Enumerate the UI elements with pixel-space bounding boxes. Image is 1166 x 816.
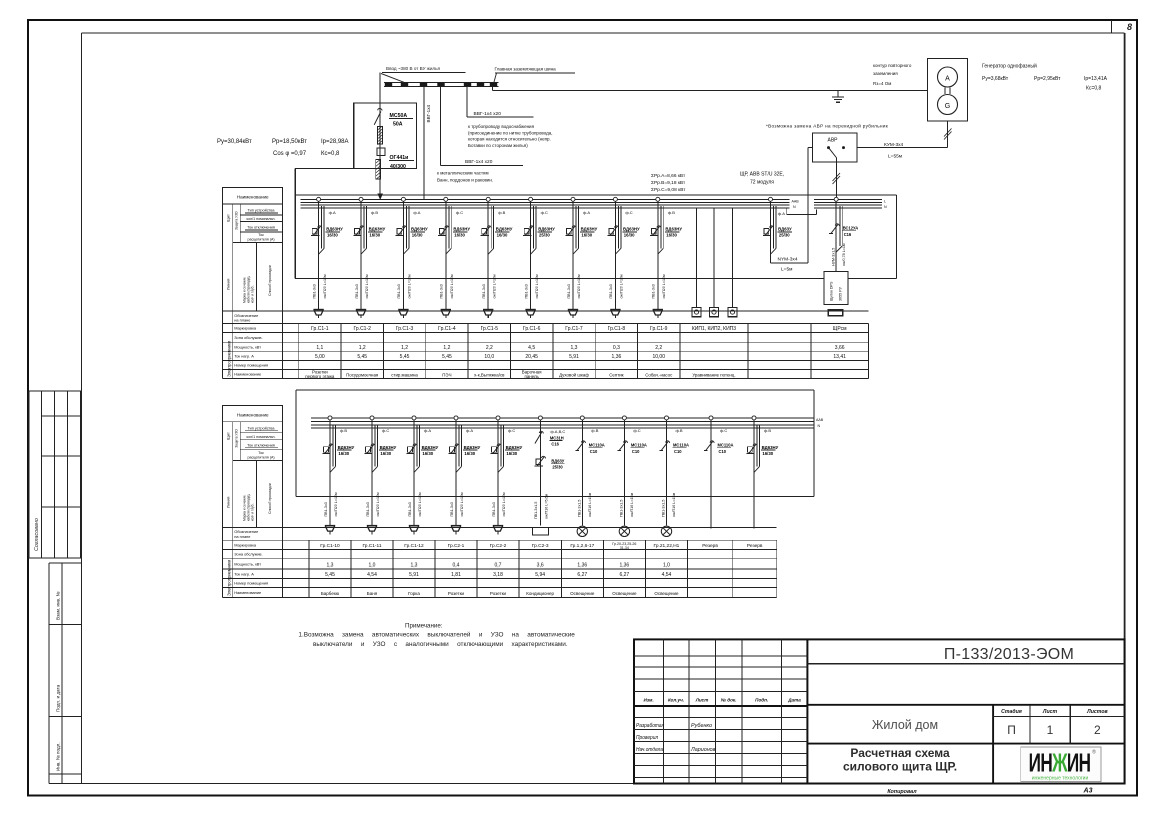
svg-text:3,66: 3,66 (835, 345, 845, 351)
svg-text:Ру=30,84кВт: Ру=30,84кВт (217, 139, 252, 145)
svg-text:5,45: 5,45 (400, 354, 410, 360)
svg-text:ΣРр.А=8,66 кВт: ΣРр.А=8,66 кВт (651, 173, 686, 179)
svg-text:Главная заземляющая шина: Главная заземляющая шина (495, 67, 557, 72)
svg-text:ААВ: ААВ (792, 200, 800, 204)
svg-text:Номер помещения: Номер помещения (234, 363, 268, 368)
svg-text:1,3: 1,3 (411, 563, 418, 569)
svg-text:ф.А: ф.А (583, 210, 590, 215)
svg-text:10,0: 10,0 (484, 354, 494, 360)
svg-text:8: 8 (1127, 22, 1132, 32)
svg-text:4,54: 4,54 (662, 572, 672, 578)
svg-text:МС110А: МС110А (673, 443, 689, 448)
svg-text:Линия: Линия (226, 497, 231, 508)
svg-text:НУМ-3х1,5: НУМ-3х1,5 (831, 248, 835, 266)
svg-text:Гр.С1-7: Гр.С1-7 (565, 326, 583, 332)
svg-text:Инв. № подл.: Инв. № подл. (56, 742, 61, 771)
svg-text:Маркировка: Маркировка (234, 542, 257, 547)
svg-text:на плане: на плане (234, 534, 250, 539)
svg-text:ВД63НУ: ВД63НУ (762, 445, 779, 450)
svg-text:Кондиционер: Кондиционер (526, 591, 554, 596)
svg-text:0,3: 0,3 (613, 345, 620, 351)
svg-text:Взам. инв. №: Взам. инв. № (56, 591, 61, 620)
svg-text:20,45: 20,45 (525, 354, 538, 360)
svg-text:Ток отключения: Ток отключения (247, 226, 275, 230)
svg-text:ож/П20 L=10м: ож/П20 L=10м (418, 492, 422, 517)
svg-text:ПВ1-3х3: ПВ1-3х3 (450, 502, 454, 516)
svg-text:Нач.отдела: Нач.отдела (636, 747, 663, 753)
svg-text:5,45: 5,45 (442, 354, 452, 360)
svg-text:L: L (884, 200, 886, 204)
svg-text:ΣРр.В=9,18 кВт: ΣРр.В=9,18 кВт (651, 180, 686, 186)
svg-text:Щиток DPS: Щиток DPS (830, 281, 834, 301)
svg-text:ВД63НУ: ВД63НУ (538, 227, 555, 232)
svg-text:0,4: 0,4 (453, 563, 460, 569)
svg-text:Рр=18,50кВт: Рр=18,50кВт (272, 139, 307, 145)
svg-text:Освещение: Освещение (570, 591, 595, 596)
svg-text:П: П (1007, 723, 1016, 737)
svg-text:Маркировка: Маркировка (234, 326, 257, 331)
svg-text:2,2: 2,2 (655, 345, 662, 351)
svg-text:Гр.С2-1: Гр.С2-1 (448, 543, 465, 549)
svg-text:Гр.С1-12: Гр.С1-12 (404, 543, 424, 549)
svg-text:6,27: 6,27 (577, 572, 587, 578)
svg-text:5,91: 5,91 (569, 354, 579, 360)
svg-text:МС31Н: МС31Н (550, 435, 564, 440)
svg-text:ВВГ-1х4: ВВГ-1х4 (426, 105, 431, 123)
svg-text:Освещение: Освещение (654, 591, 679, 596)
svg-text:ПВ1-3х1,5: ПВ1-3х1,5 (578, 500, 582, 517)
svg-text:кол² и глуб.: кол² и глуб. (251, 503, 255, 521)
svg-text:16/30: 16/30 (506, 451, 517, 456)
svg-text:16/30: 16/30 (497, 233, 508, 238)
svg-text:кол/1 номинальн.: кол/1 номинальн. (246, 435, 275, 439)
svg-text:ВД63НУ: ВД63НУ (338, 445, 355, 450)
svg-text:Освещение: Освещение (612, 591, 637, 596)
svg-text:ВД63НУ: ВД63НУ (411, 227, 428, 232)
svg-text:МС110А: МС110А (631, 443, 647, 448)
svg-text:кол² и глуб.: кол² и глуб. (251, 285, 255, 303)
svg-text:Розетки: Розетки (490, 591, 507, 596)
svg-text:Защита УЗО: Защита УЗО (235, 429, 239, 448)
svg-text:ВВГ-1х4 х20: ВВГ-1х4 х20 (465, 159, 493, 165)
svg-text:Ток: Ток (258, 451, 264, 455)
svg-text:ПЭЧ: ПЭЧ (442, 372, 451, 377)
svg-text:Гр.С2-3: Гр.С2-3 (532, 543, 549, 549)
svg-text:ВД63У: ВД63У (778, 227, 792, 232)
svg-text:ф.В: ф.В (340, 428, 347, 433)
svg-text:1.Возможна замена автоматическ: 1.Возможна замена автоматических выключа… (298, 630, 575, 638)
svg-text:5,00: 5,00 (315, 354, 325, 360)
svg-text:ф.С: ф.С (382, 428, 389, 433)
svg-text:Гр.С1-4: Гр.С1-4 (438, 326, 456, 332)
svg-text:Ру=3,68кВт: Ру=3,68кВт (982, 76, 1009, 82)
svg-text:Ботавки по сторонам жилья): Ботавки по сторонам жилья) (468, 143, 528, 148)
svg-text:первого этажа: первого этажа (305, 374, 335, 379)
svg-text:ож/П20 L=10м: ож/П20 L=10м (577, 274, 581, 299)
svg-text:Мощность, кВт: Мощность, кВт (234, 344, 261, 349)
svg-text:ПВ1-3х3: ПВ1-3х3 (440, 284, 444, 298)
svg-text:кол/1 номинальн.: кол/1 номинальн. (246, 217, 275, 221)
svg-text:ВД63НУ: ВД63НУ (581, 227, 598, 232)
svg-text:5,94: 5,94 (535, 572, 545, 578)
svg-text:ВД63НУ: ВД63НУ (326, 227, 343, 232)
svg-text:40/300: 40/300 (390, 164, 406, 170)
svg-text:ЩР, АВВ ST/U 32Е,: ЩР, АВВ ST/U 32Е, (740, 172, 784, 178)
svg-text:ф.А: ф.А (424, 428, 431, 433)
svg-text:1,2: 1,2 (359, 345, 366, 351)
svg-text:ф.А: ф.А (329, 210, 336, 215)
svg-text:6,27: 6,27 (619, 572, 629, 578)
svg-text:ф.В: ф.В (764, 428, 771, 433)
svg-text:Способ прокладки: Способ прокладки (268, 483, 272, 514)
svg-text:16/30: 16/30 (581, 233, 592, 238)
svg-text:Линия: Линия (226, 279, 231, 290)
svg-text:ф.А,В,С: ф.А,В,С (550, 429, 565, 434)
svg-text:ф.А: ф.А (778, 211, 785, 216)
svg-text:ΣРр.С=9,08 кВт: ΣРр.С=9,08 кВт (651, 187, 686, 193)
svg-text:расцепителя (А): расцепителя (А) (247, 455, 274, 459)
svg-text:Резерв: Резерв (702, 543, 718, 549)
svg-text:ОГ441и: ОГ441и (390, 155, 409, 161)
svg-text:ож/П20 L=10м: ож/П20 L=10м (334, 492, 338, 517)
svg-text:АВР: АВР (827, 138, 838, 144)
svg-text:Дата: Дата (787, 698, 801, 703)
svg-text:Наименование: Наименование (234, 590, 261, 595)
svg-text:1: 1 (1047, 723, 1054, 737)
svg-text:ф.В: ф.В (676, 428, 683, 433)
svg-text:Ток нагр. А: Ток нагр. А (234, 571, 254, 576)
svg-text:Рубенко: Рубенко (691, 723, 712, 729)
svg-text:Ток нагр. А: Ток нагр. А (234, 353, 254, 358)
svg-text:Ванн, поддонов и раковин.: Ванн, поддонов и раковин. (437, 178, 493, 183)
svg-text:0,7: 0,7 (495, 563, 502, 569)
svg-text:А: А (945, 76, 950, 83)
svg-text:КИП1, КИП2, КИП3: КИП1, КИП2, КИП3 (692, 326, 736, 332)
svg-text:ф.С: ф.С (456, 210, 463, 215)
svg-text:Примечание:: Примечание: (405, 623, 443, 630)
svg-text:16/30: 16/30 (327, 233, 338, 238)
svg-text:1,0: 1,0 (663, 563, 670, 569)
svg-text:Собач.-насос: Собач.-насос (645, 372, 673, 377)
svg-text:С10: С10 (719, 449, 727, 454)
svg-text:Электроприемники: Электроприемники (227, 341, 232, 377)
svg-text:3,6: 3,6 (537, 563, 544, 569)
svg-text:ПВ1-3х3: ПВ1-3х3 (408, 502, 412, 516)
svg-text:стир.машина: стир.машина (391, 372, 418, 377)
svg-text:ф.С: ф.С (720, 428, 727, 433)
svg-text:ААВ: ААВ (816, 418, 824, 422)
svg-text:заземления: заземления (873, 71, 898, 76)
svg-text:ВД63НУ: ВД63НУ (623, 227, 640, 232)
svg-text:ПВ1-3х3: ПВ1-3х3 (397, 284, 401, 298)
svg-text:Жилой дом: Жилой дом (872, 718, 938, 732)
svg-text:А3: А3 (1083, 788, 1093, 795)
svg-text:ф.С: ф.С (508, 428, 515, 433)
svg-text:ож/П20 L=10м: ож/П20 L=10м (620, 274, 624, 299)
svg-text:ож/П16 L=5,6м: ож/П16 L=5,6м (545, 493, 549, 519)
svg-text:Уравнивание потенц.: Уравнивание потенц. (692, 372, 735, 377)
svg-text:ож/П16 L=15м: ож/П16 L=15м (588, 492, 592, 517)
svg-text:КУМ-3х4: КУМ-3х4 (884, 142, 904, 148)
svg-text:16/30: 16/30 (412, 233, 423, 238)
svg-text:ПВ1-3х3: ПВ1-3х3 (567, 284, 571, 298)
svg-text:к трубопроводу водоснабжения: к трубопроводу водоснабжения (468, 124, 535, 129)
svg-text:ож/П20 L=10м: ож/П20 L=10м (376, 492, 380, 517)
svg-text:1,0: 1,0 (369, 563, 376, 569)
svg-text:которая находится относительно: которая находится относительно (непр. (468, 137, 551, 142)
svg-text:1,2: 1,2 (401, 345, 408, 351)
svg-text:ПВ1-3х3: ПВ1-3х3 (312, 284, 316, 298)
svg-text:ВД63НУ: ВД63НУ (665, 227, 682, 232)
svg-text:Зона обслужив.: Зона обслужив. (234, 552, 262, 557)
svg-text:3,18: 3,18 (493, 572, 503, 578)
svg-text:N: N (818, 424, 821, 428)
svg-text:выключатели и УЗО с аналогичны: выключатели и УЗО с аналогичными отключа… (313, 641, 568, 648)
svg-text:Генератор однофазный: Генератор однофазный (982, 63, 1037, 70)
svg-text:16/30: 16/30 (666, 233, 677, 238)
svg-text:Ток: Ток (258, 233, 264, 237)
svg-text:Наименование: Наименование (237, 412, 269, 417)
svg-text:Тип устройства: Тип устройства (248, 426, 276, 430)
svg-text:1,3: 1,3 (327, 563, 334, 569)
svg-text:ф.С: ф.С (625, 210, 632, 215)
svg-text:4,54: 4,54 (367, 572, 377, 578)
svg-text:16/30: 16/30 (464, 451, 475, 456)
svg-text:1,36: 1,36 (577, 563, 587, 569)
svg-text:ПВ1-3х3: ПВ1-3х3 (609, 284, 613, 298)
svg-text:16/30: 16/30 (454, 233, 465, 238)
svg-text:Проверил: Проверил (636, 735, 658, 741)
svg-text:Щит: Щит (226, 432, 231, 440)
svg-text:ВД63НУ: ВД63НУ (496, 227, 513, 232)
svg-text:Способ прокладки: Способ прокладки (268, 265, 272, 296)
svg-text:72 модуля: 72 модуля (750, 180, 774, 186)
svg-text:С16: С16 (551, 442, 559, 447)
svg-text:П-133/2013-ЭОМ: П-133/2013-ЭОМ (944, 646, 1074, 663)
svg-text:Резерв: Резерв (747, 543, 763, 549)
svg-text:ож/П20 L=10м: ож/П20 L=10м (450, 274, 454, 299)
svg-text:Подп. и дата: Подп. и дата (56, 684, 61, 712)
svg-text:ож/П20 L=10м: ож/П20 L=10м (408, 274, 412, 299)
svg-text:Кол.уч.: Кол.уч. (668, 698, 684, 703)
svg-text:10,00: 10,00 (652, 354, 665, 360)
svg-text:ф.С: ф.С (633, 428, 640, 433)
svg-text:ф.В: ф.В (591, 428, 598, 433)
svg-text:25/30: 25/30 (539, 233, 550, 238)
svg-text:Расчетная схема: Расчетная схема (850, 746, 950, 760)
svg-text:ПВ1-3х3: ПВ1-3х3 (324, 502, 328, 516)
svg-text:Духовой шкаф: Духовой шкаф (559, 372, 589, 377)
svg-text:13,41: 13,41 (833, 354, 846, 360)
svg-text:ПВ1-3х3: ПВ1-3х3 (652, 284, 656, 298)
svg-text:1,36: 1,36 (612, 354, 622, 360)
svg-text:1,2: 1,2 (443, 345, 450, 351)
svg-text:5,91: 5,91 (409, 572, 419, 578)
svg-text:на плане: на плане (234, 317, 250, 322)
svg-text:L=5м: L=5м (781, 266, 792, 272)
svg-text:МС110А: МС110А (589, 443, 605, 448)
svg-text:Гр.С2-2: Гр.С2-2 (490, 543, 507, 549)
svg-text:Электроприемники: Электроприемники (227, 560, 232, 596)
svg-text:Рр=2,95кВт: Рр=2,95кВт (1034, 76, 1061, 82)
svg-text:*Возможна замена АВР на переки: *Возможна замена АВР на перекидной рубил… (766, 123, 889, 129)
svg-text:Септик: Септик (609, 372, 623, 377)
svg-text:1,36: 1,36 (619, 563, 629, 569)
svg-text:МС110А: МС110А (718, 443, 734, 448)
svg-text:расцепителя (А): расцепителя (А) (247, 238, 274, 242)
svg-text:Ток отключения: Ток отключения (247, 443, 275, 447)
svg-text:Наименование: Наименование (237, 195, 269, 200)
svg-text:Лист: Лист (1042, 709, 1058, 715)
svg-text:Гр.С1-10: Гр.С1-10 (320, 543, 340, 549)
svg-text:Ларионов: Ларионов (690, 747, 716, 753)
svg-text:ВД63НУ: ВД63НУ (464, 445, 481, 450)
svg-text:С10: С10 (674, 449, 682, 454)
svg-text:Горка: Горка (408, 591, 420, 596)
svg-text:С16: С16 (844, 232, 852, 237)
svg-text:Номер помещения: Номер помещения (234, 581, 268, 586)
svg-text:Гр.1,2,6-17: Гр.1,2,6-17 (570, 543, 594, 549)
svg-text:ЩРсм: ЩРсм (833, 326, 848, 332)
svg-text:1,81: 1,81 (451, 572, 461, 578)
svg-text:25/30: 25/30 (552, 465, 563, 470)
svg-text:ИНЖИН: ИНЖИН (1029, 748, 1091, 778)
svg-text:2,2: 2,2 (486, 345, 493, 351)
svg-text:МС50А: МС50А (390, 113, 408, 119)
svg-text:(присоединение по нитке трубоп: (присоединение по нитке трубопровода, (468, 130, 553, 135)
svg-text:Гр.С1-2: Гр.С1-2 (353, 326, 371, 332)
svg-text:Iр=13,41А: Iр=13,41А (1084, 76, 1108, 82)
svg-text:ПВ1-3х1,5: ПВ1-3х1,5 (662, 500, 666, 517)
svg-text:контур повторного: контур повторного (873, 63, 912, 68)
svg-text:ф.С: ф.С (541, 210, 548, 215)
svg-text:Посудомоечная: Посудомоечная (346, 372, 379, 377)
svg-text:25/30: 25/30 (779, 233, 790, 238)
svg-text:инженерные технологии: инженерные технологии (1032, 776, 1089, 782)
svg-text:Копировал: Копировал (887, 789, 917, 795)
svg-text:ож/П20 L=10м: ож/П20 L=10м (365, 274, 369, 299)
svg-text:Стадия: Стадия (1001, 709, 1022, 715)
svg-text:С10: С10 (632, 449, 640, 454)
svg-text:ВД63НУ: ВД63НУ (380, 445, 397, 450)
svg-text:ВД63НУ: ВД63НУ (506, 445, 523, 450)
svg-text:ф.А: ф.А (413, 210, 420, 215)
svg-text:ож/П20 L=10м: ож/П20 L=10м (460, 492, 464, 517)
svg-text:Iр=28,98А: Iр=28,98А (321, 139, 349, 145)
svg-text:2: 2 (1094, 723, 1101, 737)
svg-text:ПВ1-3х3: ПВ1-3х3 (492, 502, 496, 516)
svg-text:ПВ1-3х1,5: ПВ1-3х1,5 (620, 500, 624, 517)
svg-text:ож/П20 L=10м: ож/П20 L=10м (323, 274, 327, 299)
svg-text:Гр.21,22,Н1: Гр.21,22,Н1 (654, 543, 680, 549)
svg-text:1,3: 1,3 (571, 345, 578, 351)
svg-text:Тип устройства: Тип устройства (248, 209, 276, 213)
svg-text:Мощность, кВт: Мощность, кВт (234, 561, 261, 566)
svg-text:ф.В: ф.В (498, 210, 505, 215)
svg-text:Защита УЗО: Защита УЗО (235, 211, 239, 230)
svg-text:Cos φ =0,97: Cos φ =0,97 (273, 151, 307, 157)
svg-text:Лист: Лист (695, 698, 709, 703)
svg-text:®: ® (1092, 749, 1096, 756)
svg-text:ПВ1-3х3: ПВ1-3х3 (355, 284, 359, 298)
svg-text:ПВ1-3х3: ПВ1-3х3 (524, 284, 528, 298)
svg-text:N: N (793, 205, 796, 209)
svg-text:Баня: Баня (367, 591, 378, 596)
svg-text:NYM-3х4: NYM-3х4 (778, 257, 798, 263)
svg-text:3655 РУ: 3655 РУ (839, 286, 843, 301)
svg-text:ф.В: ф.В (371, 210, 378, 215)
svg-text:ож/П20 L=10м: ож/П20 L=10м (535, 274, 539, 299)
svg-text:Изм.: Изм. (643, 698, 653, 703)
svg-text:С10: С10 (590, 449, 598, 454)
svg-text:к металлическим частям: к металлическим частям (437, 171, 489, 176)
svg-text:ож/П20 L=10м: ож/П20 L=10м (492, 274, 496, 299)
svg-text:панель: панель (524, 374, 539, 379)
svg-text:Подп.: Подп. (755, 698, 768, 703)
svg-text:16/30: 16/30 (380, 451, 391, 456)
svg-text:50А: 50А (393, 122, 403, 128)
svg-text:1,1: 1,1 (316, 345, 323, 351)
svg-text:Ввод ~380 В от ВУ жилья: Ввод ~380 В от ВУ жилья (386, 66, 440, 71)
svg-text:ПВ1-3х3: ПВ1-3х3 (366, 502, 370, 516)
svg-text:ВД63У: ВД63У (551, 459, 564, 464)
svg-text:4,5: 4,5 (528, 345, 535, 351)
svg-text:ВВГ-1х4 х20: ВВГ-1х4 х20 (474, 111, 502, 117)
svg-text:G: G (945, 103, 950, 110)
svg-text:L=55м: L=55м (888, 154, 902, 160)
svg-text:х-к,Вытяжка/св: х-к,Вытяжка/св (474, 372, 505, 377)
svg-text:ож/П20 L=10м: ож/П20 L=10м (502, 492, 506, 517)
svg-text:Гр.С1-8: Гр.С1-8 (608, 326, 626, 332)
svg-text:31-34: 31-34 (620, 546, 629, 550)
svg-text:ПВ1-3х1,5: ПВ1-3х1,5 (534, 502, 538, 519)
svg-text:силового щита ЩР.: силового щита ЩР. (843, 760, 957, 774)
svg-text:16/30: 16/30 (422, 451, 433, 456)
svg-text:Щит: Щит (226, 214, 231, 222)
svg-text:Гр.С1-1: Гр.С1-1 (311, 326, 329, 332)
svg-text:Кс=0,8: Кс=0,8 (321, 151, 340, 157)
svg-text:Листов: Листов (1086, 709, 1107, 715)
svg-text:Гр.С1-6: Гр.С1-6 (523, 326, 541, 332)
svg-text:Барбекю: Барбекю (321, 591, 340, 596)
svg-text:Гр.С1-9: Гр.С1-9 (650, 326, 668, 332)
svg-text:Кс=0,8: Кс=0,8 (1086, 86, 1102, 92)
svg-text:5,45: 5,45 (325, 572, 335, 578)
svg-text:16/30: 16/30 (762, 451, 773, 456)
svg-text:Разработал: Разработал (636, 723, 664, 729)
svg-text:ож/П16 L=15м: ож/П16 L=15м (672, 492, 676, 517)
svg-text:ВД63НУ: ВД63НУ (422, 445, 439, 450)
svg-text:Наименование: Наименование (234, 372, 261, 377)
svg-text:N: N (884, 205, 887, 209)
svg-text:5,45: 5,45 (357, 354, 367, 360)
svg-text:Rз=4 Ом: Rз=4 Ом (873, 81, 891, 86)
svg-text:ф.В: ф.В (668, 210, 675, 215)
svg-text:№ док.: № док. (721, 698, 737, 703)
svg-text:16/30: 16/30 (624, 233, 635, 238)
svg-text:Гр.С1-11: Гр.С1-11 (362, 543, 381, 549)
svg-text:Гр.С1-5: Гр.С1-5 (481, 326, 499, 332)
svg-text:Согласовано: Согласовано (34, 518, 40, 551)
svg-text:ПВ1-3х3: ПВ1-3х3 (482, 284, 486, 298)
svg-text:Гр.С1-3: Гр.С1-3 (396, 326, 414, 332)
svg-text:ВД63НУ: ВД63НУ (453, 227, 470, 232)
svg-text:Розетки: Розетки (448, 591, 465, 596)
svg-text:Зона обслужив.: Зона обслужив. (234, 335, 262, 340)
svg-text:16/30: 16/30 (369, 233, 380, 238)
svg-text:16/30: 16/30 (338, 451, 349, 456)
svg-text:ф.А: ф.А (466, 428, 473, 433)
